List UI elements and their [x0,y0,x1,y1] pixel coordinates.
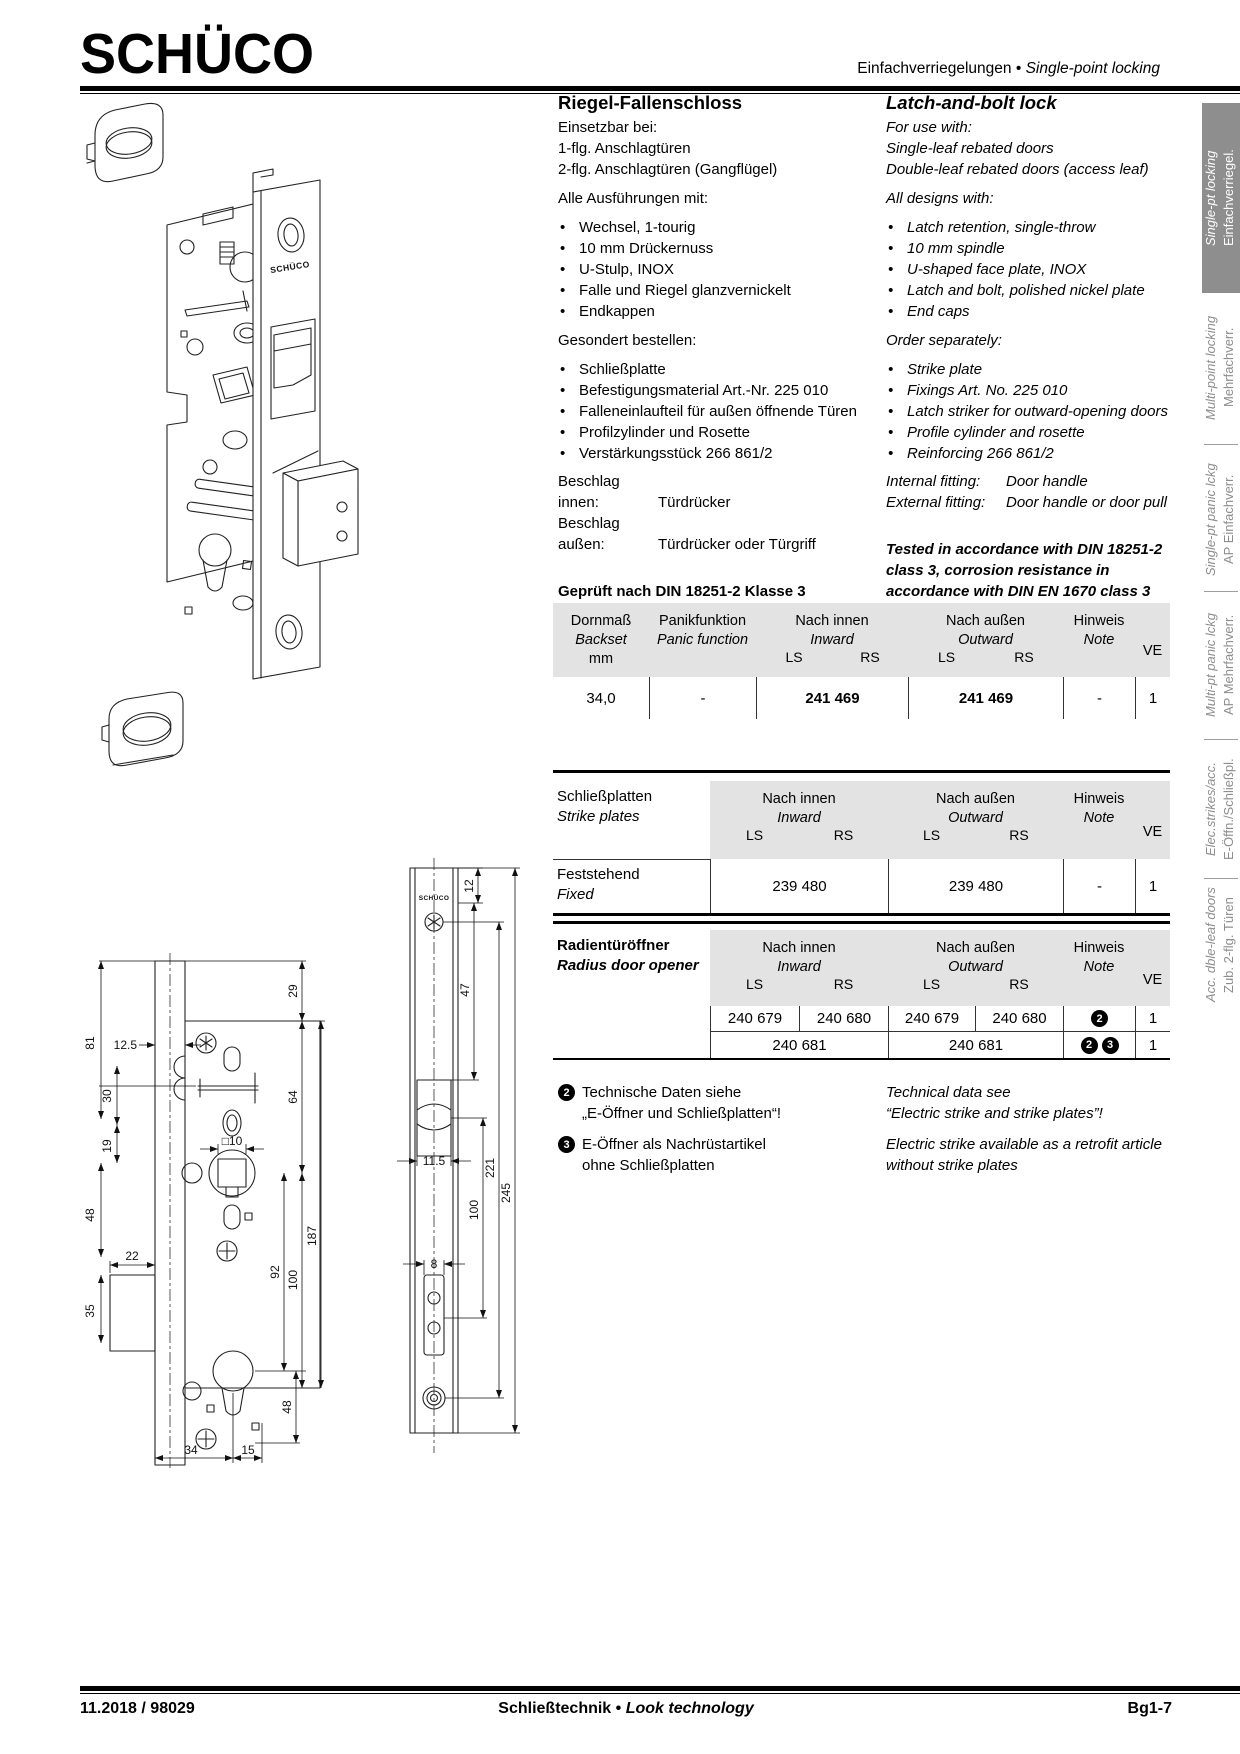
cell-panic: - [649,677,756,719]
fittings-de: Beschlag innen:Türdrücker Beschlag außen… [558,471,858,555]
face-plate: SCHÜCO [253,169,320,679]
lock-outline [110,953,320,1468]
sidebar-tab-single-pt-panic: Single-pt panic lckg AP Einfachverr. [1202,452,1240,587]
cell-note: 23 [1063,1032,1135,1058]
footnote-text-en: Electric strike available as a retrofit … [886,1134,1186,1176]
table-top-rule [553,921,1170,924]
table-radius-row-2: 240 681 240 681 23 1 [553,1032,1170,1058]
cell-outward: 241 469 [908,677,1063,719]
cell-inward: 241 469 [756,677,908,719]
sidebar-tab-multi-pt-panic: Multi-pt panic lckg AP Mehrfachverr. [1202,597,1240,733]
dim-label: 81 [83,1036,97,1050]
plate-brand-text: SCHÜCO [419,893,450,902]
cell-inward-rs: 240 680 [799,1006,888,1032]
table-label: Schließplatten Strike plates [553,781,710,859]
table-strike-row: Feststehend Fixed 239 480 239 480 - 1 [553,859,1170,913]
list-item: 10 mm Drückernuss [558,238,858,259]
fitting-value: Türdrücker [658,494,731,511]
col-ve: VE [1135,603,1170,677]
col-inward: Nach innen Inward [710,930,888,976]
tab-separator [1204,739,1238,740]
col-ve: VE [1135,930,1170,1006]
dim-label: 92 [268,1265,282,1279]
sidebar-tab-electric-strikes: Elec.strikes/acc. E-Öffn./Schließpl. [1202,746,1240,872]
tab-label-de: E-Öffn./Schließpl. [1220,746,1238,872]
dim-label: 47 [458,983,472,997]
table-label: Radientüröffner Radius door opener [553,930,710,1006]
list-item: Profile cylinder and rosette [886,422,1176,443]
product-title-de: Riegel-Fallenschloss [558,92,858,114]
col-note: Hinweis Note [1063,603,1135,677]
tab-label-de: AP Mehrfachverr. [1220,597,1238,733]
table-bottom-rule [553,913,1170,916]
col-ls: LS [710,976,799,1006]
list-item: Endkappen [558,301,858,322]
list-item: Befestigungsmaterial Art.-Nr. 225 010 [558,380,858,401]
col-rs: RS [799,976,888,1006]
table-backset-header: Dornmaß Backset mm Panikfunktion Panic f… [553,603,1170,677]
col-rs: RS [975,827,1063,859]
cell-inward: 239 480 [710,859,888,913]
cell-outward: 240 681 [888,1032,1063,1058]
list-item: U-Stulp, INOX [558,259,858,280]
cell-backset: 34,0 [553,677,649,719]
col-rs: RS [975,976,1063,1006]
sidebar-tab-single-pt-locking: Single-pt locking Einfachverriegel. [1202,103,1240,293]
col-rs: RS [985,649,1063,677]
col-rs: RS [799,827,888,859]
table-backset: Dornmaß Backset mm Panikfunktion Panic f… [553,603,1170,719]
designs-list-de: Wechsel, 1-tourig 10 mm Drückernuss U-St… [558,217,858,322]
list-item: Strike plate [886,359,1176,380]
dim-label: 12 [462,879,476,893]
end-cap-top [87,103,163,181]
col-ls: LS [908,649,985,677]
tab-label-de: Mehrfachverr. [1220,300,1238,435]
tab-label-en: Single-pt panic lckg [1202,452,1220,587]
cell-note: - [1063,859,1135,913]
table-strike-header: Schließplatten Strike plates Nach innen … [553,781,1170,859]
header-title-sep: • [1016,60,1021,77]
table-backset-row: 34,0 - 241 469 241 469 - 1 [553,677,1170,719]
col-note: Hinweis Note [1063,930,1135,1006]
dim-label: 15 [241,1443,255,1457]
list-item: Latch striker for outward-opening doors [886,401,1176,422]
list-item: End caps [886,301,1176,322]
col-outward: Nach außen Outward [888,781,1063,827]
row-label: Feststehend Fixed [553,859,710,913]
cell-ve: 1 [1135,1032,1170,1058]
designs-heading-en: All designs with: [886,188,1176,209]
list-item: U-shaped face plate, INOX [886,259,1176,280]
fitting-label: Beschlag außen: [558,513,658,555]
table-radius-header: Radientüröffner Radius door opener Nach … [553,930,1170,1006]
col-ls: LS [888,976,975,1006]
note-badge: 2 [1081,1037,1098,1054]
intro-line: Einsetzbar bei: [558,117,858,138]
designs-list-en: Latch retention, single-throw 10 mm spin… [886,217,1176,322]
col-inward: Nach innen Inward [756,603,908,649]
list-item: Wechsel, 1-tourig [558,217,858,238]
dim-label: 48 [280,1400,294,1414]
tab-label-en: Multi-point locking [1202,300,1220,435]
intro-line: For use with: [886,117,1176,138]
footnote-badge: 2 [558,1084,575,1101]
cell-outward: 239 480 [888,859,1063,913]
list-item: Latch and bolt, polished nickel plate [886,280,1176,301]
cell-inward-ls: 240 679 [710,1006,799,1032]
intro-line: 2-flg. Anschlagtüren (Gangflügel) [558,159,858,180]
table-radius-row-1: 240 679 240 680 240 679 240 680 2 1 [553,1006,1170,1032]
dim-label: 48 [83,1208,97,1222]
tab-label-en: Single-pt locking [1202,103,1220,293]
col-ls: LS [710,827,799,859]
end-cap-bottom [102,692,183,766]
order-heading-en: Order separately: [886,330,1176,351]
dim-label: 245 [499,1183,513,1203]
fittings-en: Internal fitting:Door handle External fi… [886,471,1176,513]
cell-ve: 1 [1135,859,1170,913]
header-title-en: Single-point locking [1026,60,1160,77]
list-item: Schließplatte [558,359,858,380]
cell-ve: 1 [1135,1006,1170,1032]
list-item: Verstärkungsstück 266 861/2 [558,443,858,464]
note-badge: 2 [1091,1010,1108,1027]
cell-note: - [1063,677,1135,719]
tab-separator [1204,878,1238,879]
dim-label: 30 [100,1089,114,1103]
schueco-logo: SCHÜCO [80,22,314,86]
col-panic: Panikfunktion Panic function [649,603,756,677]
dim-label: 64 [286,1090,300,1104]
intro-line: 1-flg. Anschlagtüren [558,138,858,159]
dim-label: 8 [431,1257,438,1271]
fitting-label: External fitting: [886,492,1006,513]
order-heading-de: Gesondert bestellen: [558,330,858,351]
table-strike-plates: Schließplatten Strike plates Nach innen … [553,770,1170,916]
footer-rule [80,1686,1240,1694]
footnote-text-de: Technische Daten siehe „E-Öffner und Sch… [582,1082,872,1124]
designs-heading-de: Alle Ausführungen mit: [558,188,858,209]
product-text-english: Latch-and-bolt lock For use with: Single… [886,92,1176,602]
dim-label: 29 [286,984,300,998]
tab-label-de: Einfachverriegel. [1220,103,1238,293]
page-header-title: Einfachverriegelungen • Single-point loc… [553,60,1160,78]
footnote-text-en: Technical data see “Electric strike and … [886,1082,1186,1124]
intro-line: Single-leaf rebated doors [886,138,1176,159]
list-item: Reinforcing 266 861/2 [886,443,1176,464]
sidebar-tab-dble-leaf-doors: Acc. dble-leaf doors Zub. 2-flg. Türen [1202,885,1240,1005]
dim-label: 221 [483,1158,497,1178]
tab-separator [1204,591,1238,592]
dim-label: 12.5 [114,1038,138,1052]
dim-label: 187 [305,1226,319,1246]
tab-label-de: AP Einfachverr. [1220,452,1238,587]
footnote-text-de: E-Öffner als Nachrüstartikel ohne Schlie… [582,1134,872,1176]
order-list-de: Schließplatte Befestigungsmaterial Art.-… [558,359,858,464]
list-item: Profilzylinder und Rosette [558,422,858,443]
col-inward: Nach innen Inward [710,781,888,827]
dim-label: □10 [222,1134,243,1148]
fitting-value: Door handle [1006,473,1088,490]
iso-lock-drawing: SCHÜCO [75,95,485,795]
list-item: 10 mm spindle [886,238,1176,259]
tab-label-en: Multi-pt panic lckg [1202,597,1220,733]
dim-label: 11.5 [423,1154,446,1168]
product-title-en: Latch-and-bolt lock [886,92,1176,114]
cell-ve: 1 [1135,677,1170,719]
fitting-value: Türdrücker oder Türgriff [658,536,816,553]
product-text-german: Riegel-Fallenschloss Einsetzbar bei: 1-f… [558,92,858,644]
dim-label: 35 [83,1304,97,1318]
cell-note: 2 [1063,1006,1135,1032]
dim-label: 100 [286,1270,300,1290]
dim-label: 34 [184,1443,198,1457]
tested-block-en: Tested in accordance with DIN 18251-2 cl… [886,539,1176,602]
col-ve: VE [1135,781,1170,859]
fitting-value: Door handle or door pull [1006,494,1167,511]
col-backset: Dornmaß Backset mm [553,603,649,677]
col-outward: Nach außen Outward [908,603,1063,649]
tab-label-de: Zub. 2-flg. Türen [1220,885,1238,1005]
bolt-block [283,461,358,566]
note-badge: 3 [1102,1037,1119,1054]
cell-outward-rs: 240 680 [975,1006,1063,1032]
header-title-de: Einfachverriegelungen [857,60,1011,77]
intro-line: Double-leaf rebated doors (access leaf) [886,159,1176,180]
table-radius-opener: Radientüröffner Radius door opener Nach … [553,921,1170,1060]
tab-label-en: Acc. dble-leaf doors [1202,885,1220,1005]
dim-label: 19 [100,1139,114,1153]
list-item: Falleneinlaufteil für außen öffnende Tür… [558,401,858,422]
order-list-en: Strike plate Fixings Art. No. 225 010 La… [886,359,1176,464]
col-ls: LS [888,827,975,859]
list-item: Falle und Riegel glanzvernickelt [558,280,858,301]
list-item: Latch retention, single-throw [886,217,1176,238]
list-item: Fixings Art. No. 225 010 [886,380,1176,401]
footnote-badge: 3 [558,1136,575,1153]
lock-front-view-drawing: 81 30 19 48 35 12.5 22 □10 29 64 92 100 … [85,953,340,1473]
table-bottom-rule [553,1058,1170,1060]
col-outward: Nach außen Outward [888,930,1063,976]
table-top-rule [553,770,1170,773]
sidebar-tab-multi-point-locking: Multi-point locking Mehrfachverr. [1202,300,1240,435]
cell-outward-ls: 240 679 [888,1006,975,1032]
col-rs: RS [832,649,908,677]
col-note: Hinweis Note [1063,781,1135,859]
cell-inward: 240 681 [710,1032,888,1058]
dim-label: 22 [125,1249,139,1263]
col-ls: LS [756,649,832,677]
fitting-label: Internal fitting: [886,471,1006,492]
face-plate-view-drawing: SCHÜCO 12 47 11.5 8 100 221 [395,858,525,1458]
footer-page-number: Bg1-7 [80,1700,1172,1718]
tab-separator [1204,444,1238,445]
fitting-label: Beschlag innen: [558,471,658,513]
tab-label-en: Elec.strikes/acc. [1202,746,1220,872]
dim-label: 100 [467,1200,481,1220]
